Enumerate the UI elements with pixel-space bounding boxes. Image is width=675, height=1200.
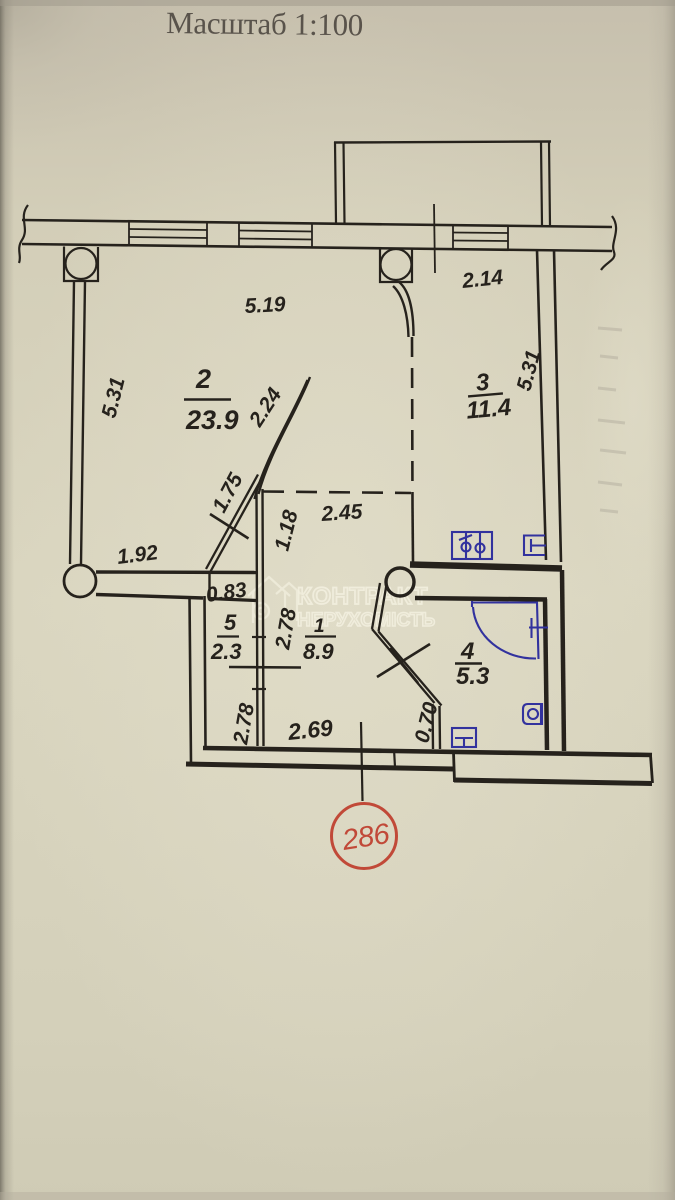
svg-text:23.9: 23.9 (185, 405, 239, 435)
svg-text:2.45: 2.45 (320, 500, 364, 526)
svg-text:2.69: 2.69 (286, 714, 334, 745)
svg-text:КОНТРАКТ: КОНТРАКТ (297, 583, 428, 610)
svg-text:2: 2 (195, 364, 211, 394)
svg-text:5.3: 5.3 (456, 663, 490, 690)
svg-text:1: 1 (314, 616, 325, 637)
svg-text:5: 5 (224, 610, 237, 635)
svg-text:11.4: 11.4 (465, 394, 512, 425)
svg-text:2.3: 2.3 (210, 639, 242, 664)
svg-text:5.19: 5.19 (244, 293, 286, 318)
svg-text:Масштаб 1:100: Масштаб 1:100 (166, 5, 363, 42)
svg-text:4: 4 (460, 638, 474, 665)
svg-text:8.9: 8.9 (303, 639, 334, 664)
svg-text:2.14: 2.14 (460, 266, 504, 293)
